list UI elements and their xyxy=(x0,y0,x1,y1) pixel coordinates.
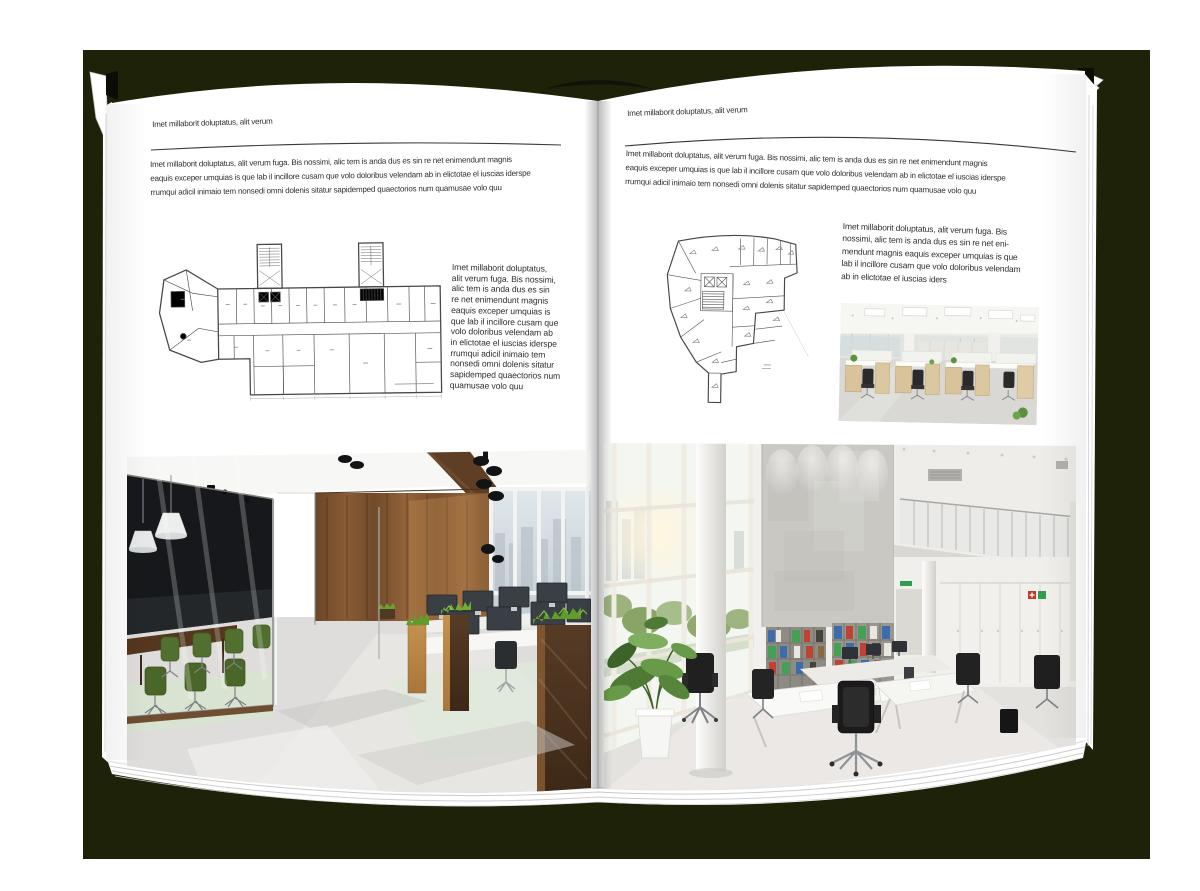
office-photo-small xyxy=(839,303,1039,425)
brochure-mockup-scene: Imet millaborit doluptatus, alit verum I… xyxy=(0,0,1200,891)
left-page-intro: Imet millaborit doluptatus, alit verum f… xyxy=(150,152,581,200)
spine-gutter-shadow xyxy=(585,101,612,789)
right-side-text: Imet millaborit doluptatus, alit verum f… xyxy=(841,220,1059,290)
cover-corner-left xyxy=(106,71,118,100)
floor-plan-right xyxy=(649,224,812,414)
floor-plan-left xyxy=(157,239,445,403)
column xyxy=(696,441,726,771)
exit-sign xyxy=(900,581,912,586)
trash-bin xyxy=(1000,709,1018,733)
right-page-curl-shade xyxy=(1042,74,1086,738)
concrete-wall xyxy=(762,441,894,627)
office-photo-right xyxy=(604,441,1076,791)
office-photo-left xyxy=(127,449,591,799)
left-side-text: Imet millaborit doluptatus, alit verum f… xyxy=(450,262,570,392)
left-page-curl-shade xyxy=(106,104,148,760)
